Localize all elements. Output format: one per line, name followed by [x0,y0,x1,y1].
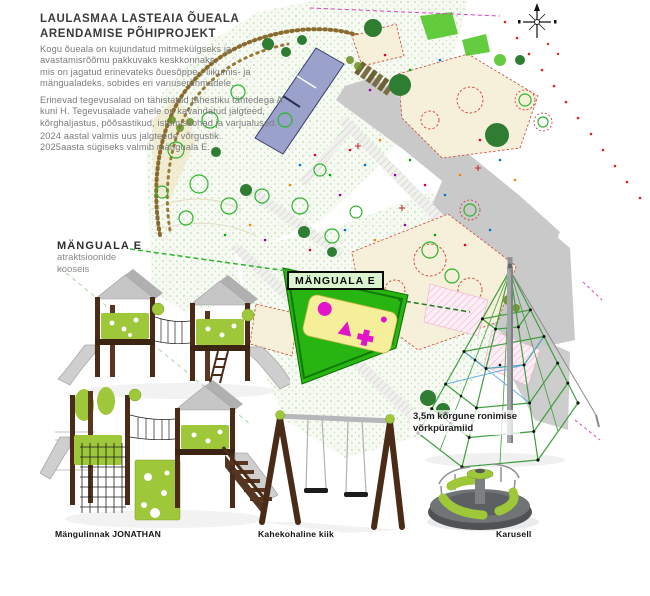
area-note-subtitle: atraktsioonide [57,252,142,264]
tower-structure-a [58,269,290,389]
area-note-title: MÄNGUALA E [57,240,142,252]
pyramid-annotation-line: võrkpüramiid [413,423,517,435]
tower-structure-b [40,380,278,520]
title-line-1: LAULASMAA LASTEAIA ÕUEALA [40,12,239,27]
project-board: LAULASMAA LASTEAIA ÕUEALA ARENDAMISE PÕH… [0,0,650,596]
equipment-label-swing: Kahekohaline kiik [258,529,334,539]
swing-render [250,400,405,535]
project-title: LAULASMAA LASTEAIA ÕUEALA ARENDAMISE PÕH… [40,12,239,42]
pyramid-annotation: 3,5m kõrgune ronimise võrkpüramiid [410,410,520,435]
intro-line: mis on jagatud erinevateks õuesõppe-, li… [40,67,251,78]
zones-line: Erinevad tegevusalad on tähistatud tähes… [40,95,283,106]
zones-line: kõrghaljastus, põõsastikud, istumiskohad… [40,118,283,129]
area-note-subtitle: kooseis [57,264,142,276]
pyramid-annotation-line: 3,5m kõrgune ronimise [413,411,517,423]
map-zone-label: MÄNGUALA E [287,271,384,290]
status-line: 2024 aastal valmis uus jalgteede võrgust… [40,131,222,142]
compass-icon [518,3,557,38]
intro-line: avastamisrõõmu pakkuvaks keskkonnaks, [40,55,251,66]
intro-paragraph: Kogu õueala on kujundatud mitmekülgseks … [40,44,251,90]
status-paragraph: 2024 aastal valmis uus jalgteede võrgust… [40,131,222,154]
equipment-label-playground: Mängulinnak JONATHAN [55,529,161,539]
title-line-2: ARENDAMISE PÕHIPROJEKT [40,27,239,42]
zones-paragraph: Erinevad tegevusalad on tähistatud tähes… [40,95,283,129]
equipment-label-carousel: Karusell [496,529,532,539]
zones-line: kuni H. Tegevusalade vahele on kavandatu… [40,106,283,117]
intro-line: mängualadeks, sobides eri vanuserühmadel… [40,78,251,89]
carousel-render [415,440,545,532]
area-note: MÄNGUALA E atraktsioonide kooseis [57,240,142,276]
net-pyramid-render [400,255,600,470]
status-line: 2025aasta sügiseks valmib mänguala E. [40,142,222,153]
intro-line: Kogu õueala on kujundatud mitmekülgseks … [40,44,251,55]
